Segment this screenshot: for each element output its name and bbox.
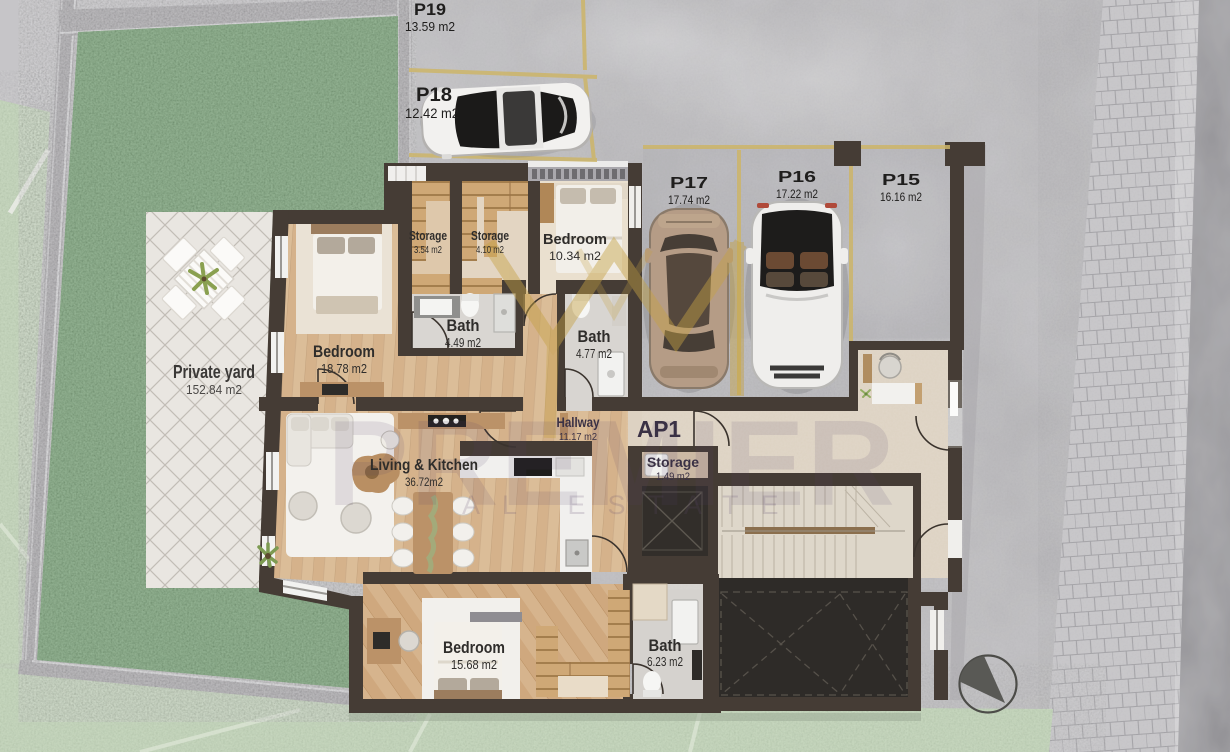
svg-text:Hallway: Hallway <box>557 414 600 430</box>
svg-text:17.74 m2: 17.74 m2 <box>668 193 710 207</box>
svg-text:15.68 m2: 15.68 m2 <box>451 657 497 672</box>
svg-text:Bedroom: Bedroom <box>443 638 505 657</box>
svg-text:152.84 m2: 152.84 m2 <box>186 382 242 397</box>
svg-text:4.49 m2: 4.49 m2 <box>445 335 481 350</box>
svg-text:Bath: Bath <box>447 316 480 335</box>
svg-text:Private yard: Private yard <box>173 362 255 382</box>
svg-text:Storage: Storage <box>409 228 447 243</box>
svg-text:P19: P19 <box>414 0 446 19</box>
svg-text:18.78 m2: 18.78 m2 <box>321 361 367 376</box>
svg-text:P15: P15 <box>882 172 920 189</box>
svg-text:1.49 m2: 1.49 m2 <box>656 471 690 483</box>
svg-text:Bedroom: Bedroom <box>313 342 375 361</box>
svg-text:3.54 m2: 3.54 m2 <box>414 245 442 256</box>
svg-text:12.42 m2: 12.42 m2 <box>405 105 459 121</box>
svg-text:Storage: Storage <box>647 454 699 470</box>
svg-text:17.22 m2: 17.22 m2 <box>776 187 818 201</box>
svg-text:11.17 m2: 11.17 m2 <box>559 432 597 443</box>
svg-text:10.34 m2: 10.34 m2 <box>549 249 601 263</box>
svg-text:Bath: Bath <box>578 327 611 346</box>
svg-text:Storage: Storage <box>471 228 509 243</box>
svg-text:6.23 m2: 6.23 m2 <box>647 654 683 669</box>
svg-text:P16: P16 <box>778 169 816 186</box>
svg-text:Bedroom: Bedroom <box>543 231 607 248</box>
svg-text:16.16 m2: 16.16 m2 <box>880 190 922 204</box>
svg-text:13.59 m2: 13.59 m2 <box>405 19 455 34</box>
svg-text:4.10 m2: 4.10 m2 <box>476 245 504 256</box>
svg-text:P18: P18 <box>416 85 452 106</box>
svg-text:P17: P17 <box>670 175 708 192</box>
svg-text:AP1: AP1 <box>637 416 681 442</box>
svg-text:AL ESTATE: AL ESTATE <box>462 490 801 520</box>
svg-text:Living & Kitchen: Living & Kitchen <box>370 457 478 474</box>
svg-text:4.77 m2: 4.77 m2 <box>576 346 612 361</box>
svg-text:Bath: Bath <box>649 636 682 655</box>
svg-text:36.72m2: 36.72m2 <box>405 475 443 489</box>
